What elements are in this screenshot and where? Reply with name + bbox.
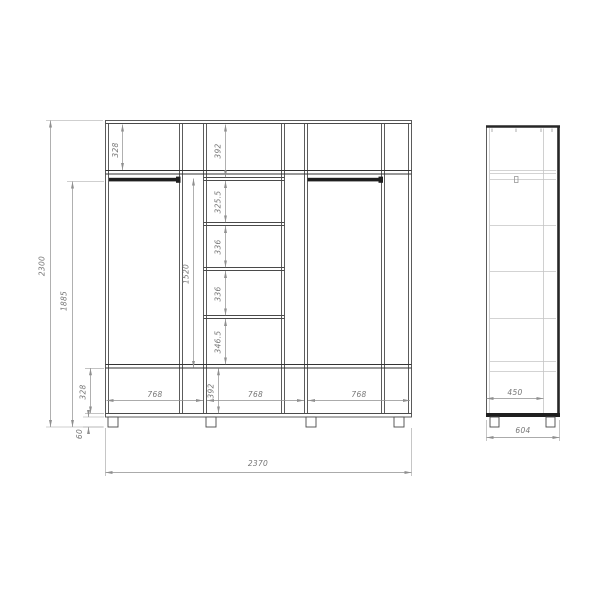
dim-inner-depth: 450: [487, 388, 544, 399]
front-feet: [108, 417, 404, 427]
dim-section-3: 336: [214, 226, 226, 267]
hanging-rod-left: [109, 177, 181, 183]
top-shelf-band: [106, 171, 412, 175]
dim-label-overall-depth: 604: [515, 426, 530, 435]
bottom-shelf-band: [106, 365, 412, 369]
dim-overall-width: 2370: [106, 428, 412, 476]
dim-label-section-1: 392: [214, 143, 223, 158]
hanging-rod-right: [308, 177, 384, 183]
dim-label-width-3: 768: [351, 390, 366, 399]
dim-label-section-6: 392: [207, 383, 216, 398]
dim-label-top-shelf: 328: [111, 142, 120, 157]
front-view: 328 392 325.5 336 336 346.5 392 1520: [38, 121, 412, 477]
side-view: 450 604: [486, 126, 560, 441]
wardrobe-technical-drawing: 328 392 325.5 336 336 346.5 392 1520: [0, 0, 600, 600]
dim-label-width-1: 768: [147, 390, 162, 399]
front-carcass: [106, 121, 412, 418]
dim-label-section-3: 336: [214, 239, 223, 254]
dim-label-rod-clearance: 1520: [182, 264, 191, 284]
dim-rod-clearance: 1520: [182, 179, 194, 368]
dim-top-shelf: 328: [111, 125, 123, 171]
dim-section-2: 325.5: [214, 181, 226, 222]
dim-label-section-2: 325.5: [214, 191, 223, 214]
dim-label-overall-height: 2300: [38, 256, 47, 276]
dim-label-section-5: 346.5: [214, 331, 223, 354]
dim-label-hanging-height: 1885: [60, 291, 69, 311]
dim-section-5: 346.5: [214, 319, 226, 364]
dim-overall-height: 2300: [38, 121, 104, 428]
drawing-canvas: 328 392 325.5 336 336 346.5 392 1520: [0, 0, 600, 600]
dim-width-3: 768: [308, 390, 410, 401]
dim-label-inner-depth: 450: [507, 388, 522, 397]
dim-section-4: 336: [214, 271, 226, 315]
dim-width-1: 768: [107, 390, 204, 401]
dim-label-section-4: 336: [214, 286, 223, 301]
dim-feet: 60: [75, 411, 104, 440]
dim-section-1: 392: [214, 125, 226, 178]
dim-label-width-2: 768: [248, 390, 263, 399]
dim-width-2: 768: [207, 390, 304, 401]
dim-label-overall-width: 2370: [248, 459, 268, 468]
side-fittings: [492, 129, 552, 183]
dim-bottom-shelf: 328: [79, 368, 105, 413]
dim-section-6: 392: [207, 368, 219, 413]
side-shelf-lines: [490, 171, 556, 372]
dim-label-feet: 60: [75, 429, 84, 439]
dim-label-bottom-shelf: 328: [79, 384, 88, 399]
